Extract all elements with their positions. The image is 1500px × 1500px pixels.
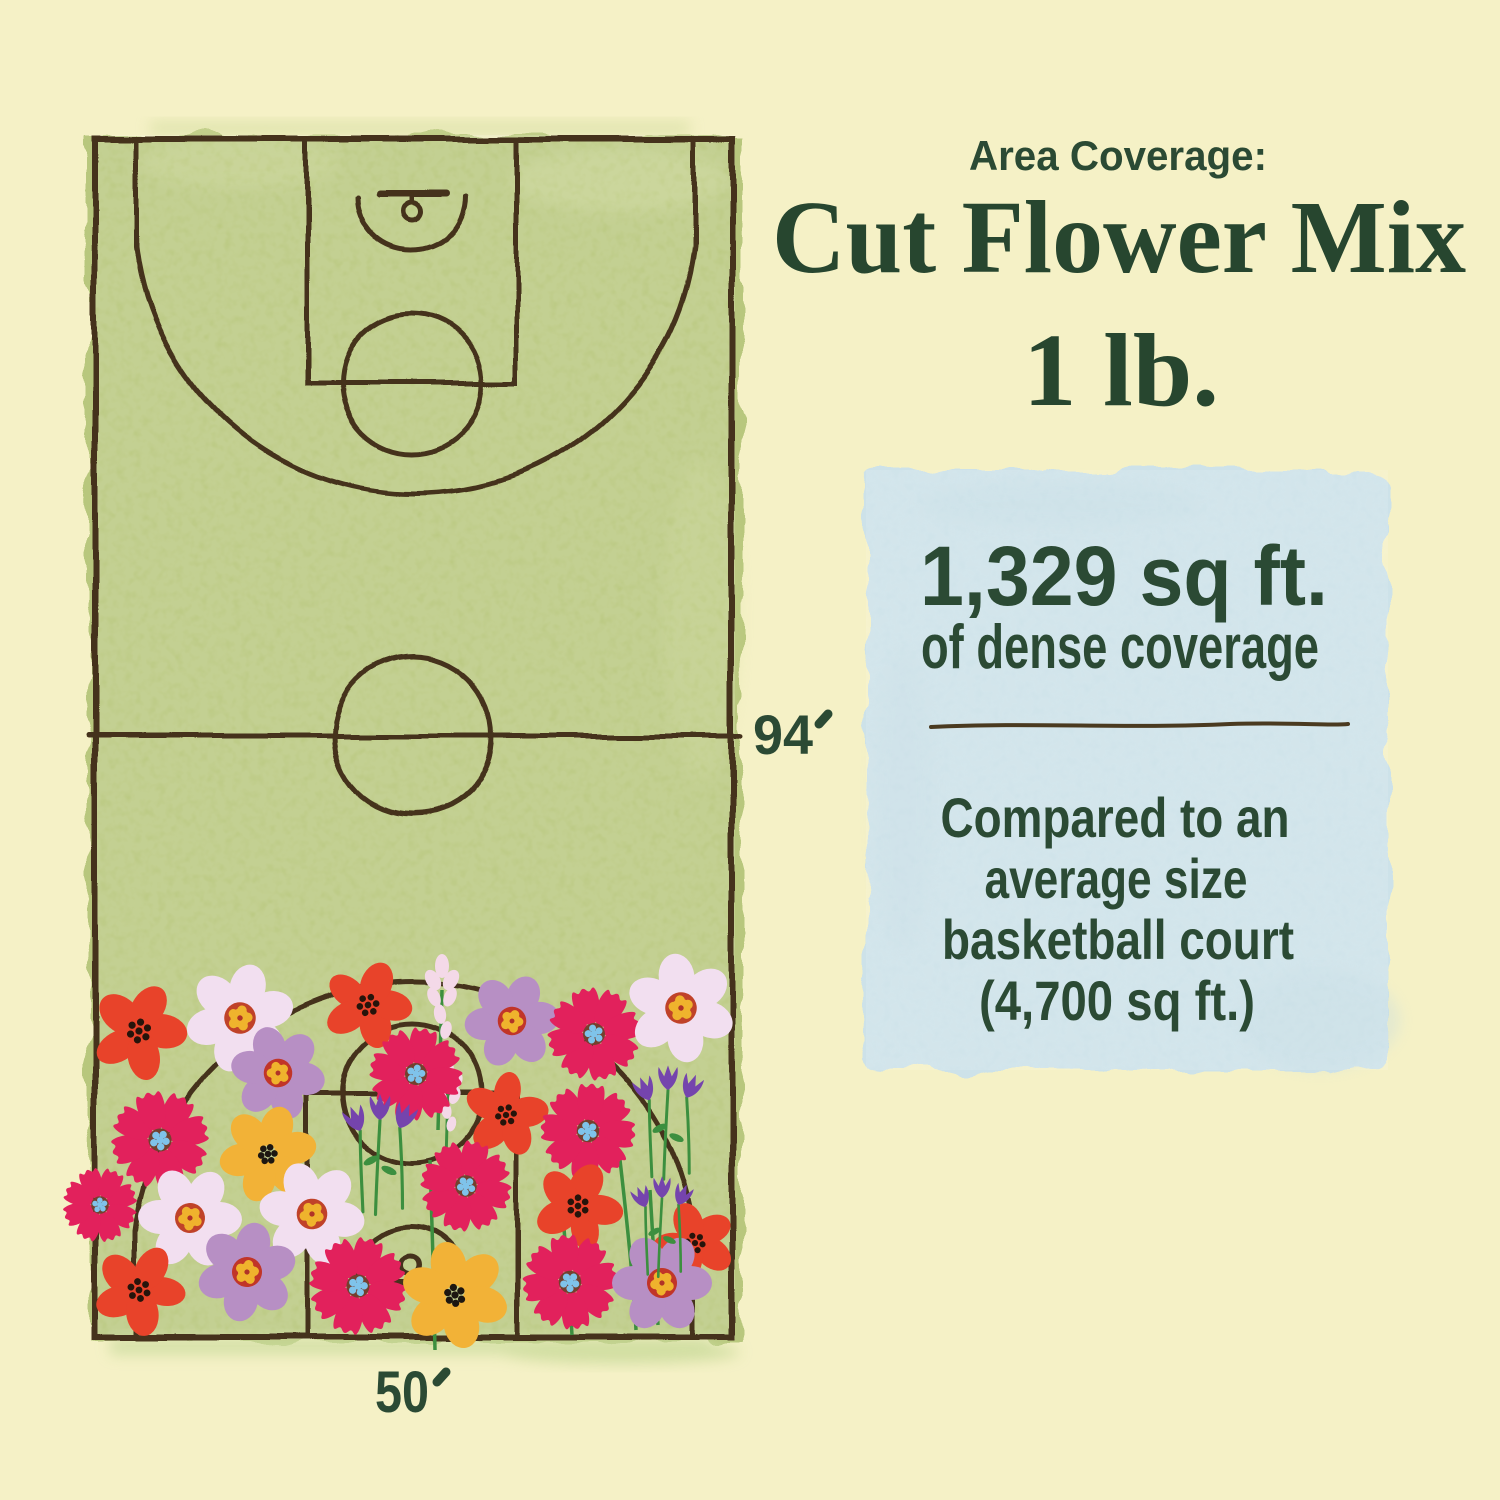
svg-text:94: 94	[753, 703, 813, 766]
svg-text:50: 50	[375, 1360, 429, 1425]
svg-text:Compared to an: Compared to an	[941, 786, 1290, 849]
svg-text:Cut Flower Mix: Cut Flower Mix	[772, 180, 1466, 295]
svg-text:Area Coverage:: Area Coverage:	[969, 132, 1267, 179]
svg-text:average size: average size	[985, 847, 1248, 910]
svg-text:1,329 sq ft.: 1,329 sq ft.	[920, 529, 1328, 623]
svg-text:of dense coverage: of dense coverage	[921, 613, 1319, 682]
svg-text:basketball court: basketball court	[942, 908, 1294, 971]
svg-text:1 lb.: 1 lb.	[1023, 313, 1219, 428]
svg-text:(4,700 sq ft.): (4,700 sq ft.)	[979, 969, 1255, 1032]
